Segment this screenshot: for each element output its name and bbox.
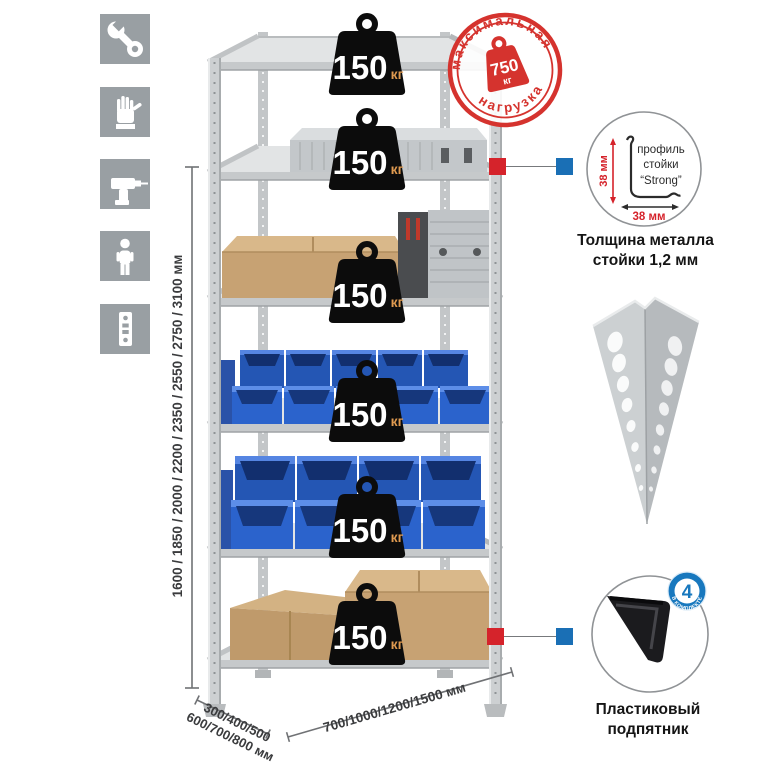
height-dimension-label: 1600 / 1850 / 2000 / 2200 / 2350 / 2550 … <box>170 215 186 637</box>
callout-blue-marker-top <box>556 158 573 175</box>
load-unit: кг <box>391 161 404 177</box>
load-value: 150 <box>332 512 387 549</box>
drill-icon <box>100 159 150 209</box>
profile-caption-line2: стойки 1,2 мм <box>568 251 723 271</box>
profile-dim-horizontal-label: 38 мм <box>632 211 665 223</box>
drill-icon-glyph <box>100 159 150 209</box>
load-unit: кг <box>391 66 404 82</box>
weight-badge-shelf4: 150 кг <box>312 360 422 444</box>
profile-detail-circle: 38 мм 38 мм профиль стойки “Strong” <box>583 108 705 230</box>
weight-badge-shelf5: 150 кг <box>312 476 422 560</box>
perforated-strip-icon <box>100 304 150 354</box>
person-icon-glyph <box>100 231 150 281</box>
weight-badge-shelf1: 150 кг <box>312 13 422 97</box>
profile-caption: Толщина металла стойки 1,2 мм <box>568 231 723 271</box>
plastic-foot-circle: 4 в комплекте <box>588 572 713 697</box>
gloves-icon <box>100 87 150 137</box>
profile-dim-vertical-label: 38 мм <box>598 155 610 187</box>
weight-badge-shelf3: 150 кг <box>312 241 422 325</box>
callout-red-marker-top <box>489 158 506 175</box>
aluminum-case-upright <box>428 210 492 298</box>
callout-red-marker-bottom <box>487 628 504 645</box>
load-unit: кг <box>391 294 404 310</box>
plastic-foot-caption: Пластиковый подпятник <box>573 700 723 740</box>
load-unit: кг <box>391 529 404 545</box>
weight-badge-shelf6: 150 кг <box>312 583 422 667</box>
load-unit: кг <box>391 413 404 429</box>
profile-label-line2: стойки <box>643 159 678 171</box>
max-load-stamp: максимальная нагрузка 750 кг <box>440 6 570 136</box>
product-infographic: 1600 / 1850 / 2000 / 2200 / 2350 / 2550 … <box>0 0 765 765</box>
person-icon <box>100 231 150 281</box>
load-value: 150 <box>332 144 387 181</box>
callout-line-top <box>500 166 558 167</box>
load-value: 150 <box>332 277 387 314</box>
load-value: 150 <box>332 619 387 656</box>
load-unit: кг <box>391 636 404 652</box>
profile-label-line1: профиль <box>637 144 685 156</box>
load-value: 150 <box>332 396 387 433</box>
plastic-foot-caption-line2: подпятник <box>573 720 723 740</box>
callout-blue-marker-bottom <box>556 628 573 645</box>
angle-post-image <box>583 292 713 540</box>
plastic-foot-caption-line1: Пластиковый <box>573 700 723 720</box>
perforated-strip-icon-glyph <box>100 304 150 354</box>
wrench-icon <box>100 14 150 64</box>
profile-caption-line1: Толщина металла <box>568 231 723 251</box>
wrench-icon-glyph <box>100 14 150 64</box>
gloves-icon-glyph <box>100 87 150 137</box>
included-count-value: 4 <box>682 582 693 603</box>
weight-badge-shelf2: 150 кг <box>312 108 422 192</box>
callout-line-bottom <box>500 636 558 637</box>
profile-label-line3: “Strong” <box>640 175 682 187</box>
load-value: 150 <box>332 49 387 86</box>
